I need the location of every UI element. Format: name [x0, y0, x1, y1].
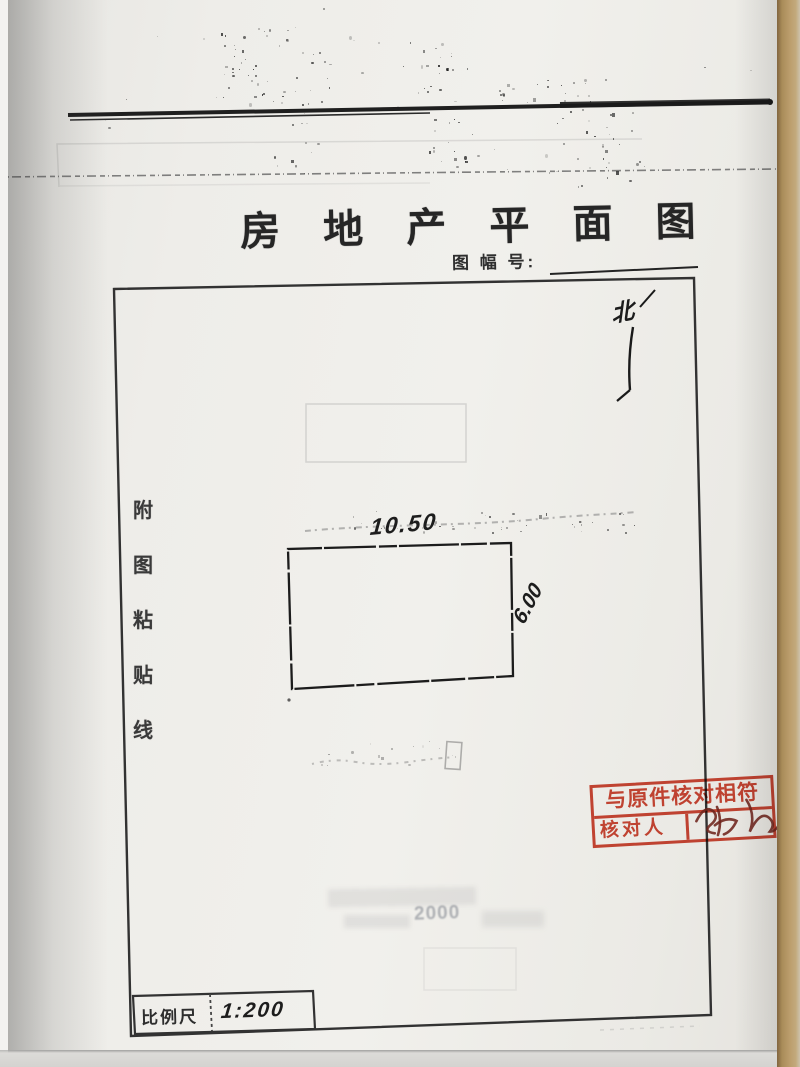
bleed-through-smudge — [482, 911, 544, 927]
scale-value: 1:200 — [220, 998, 286, 1024]
paste-line-char: 附 — [127, 494, 159, 523]
scanned-document: 房 地 产 平 面 图 图 幅 号: 北 附 图 粘 贴 线 10.50 6.0… — [0, 0, 800, 1067]
paste-line-char: 图 — [127, 549, 159, 578]
bleed-through-smudge — [344, 915, 410, 928]
document-title: 房 地 产 平 面 图 — [239, 189, 712, 258]
paste-line-char: 粘 — [127, 604, 159, 633]
stamp-verifier-label: 核对人 — [594, 814, 689, 845]
north-label: 北 — [609, 291, 635, 330]
page-bottom-edge — [0, 1050, 777, 1067]
left-page-edge — [0, 0, 8, 1067]
sheet-number-label: 图 幅 号: — [452, 247, 537, 273]
scale-label: 比例尺 — [141, 1002, 199, 1028]
plot-right-dimension-value: 6.00 — [509, 579, 548, 629]
paste-line-char: 线 — [127, 714, 159, 743]
paste-line-char: 贴 — [127, 659, 159, 688]
plot-right-dimension: 6.00 — [504, 578, 552, 626]
bleed-through-text: 2000 — [414, 902, 461, 926]
desk-edge — [777, 0, 800, 1067]
